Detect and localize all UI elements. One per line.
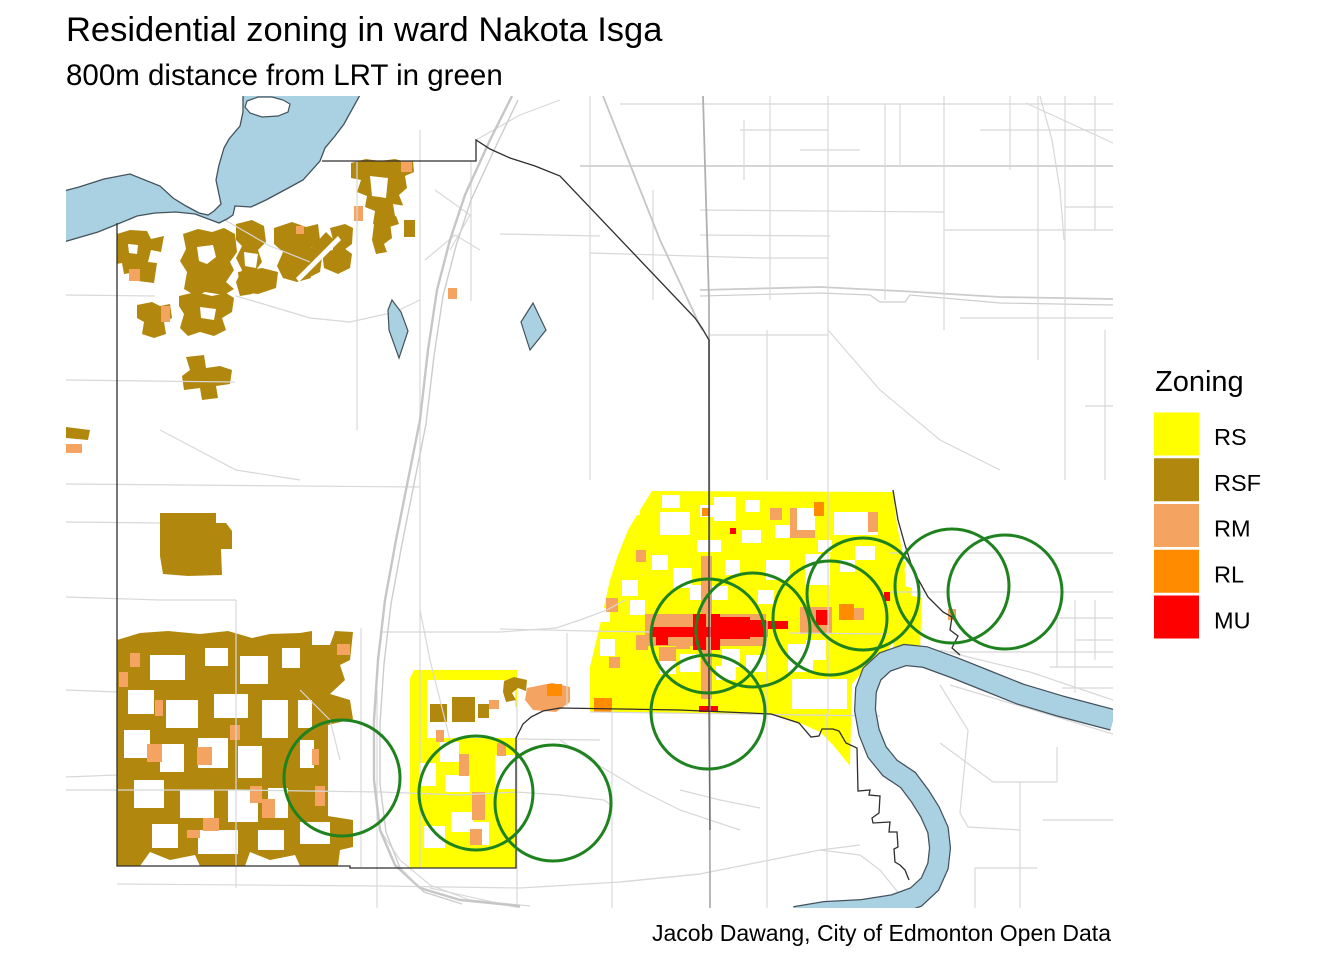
svg-text:Residential zoning in ward Nak: Residential zoning in ward Nakota Isga	[66, 11, 663, 49]
svg-text:Jacob Dawang, City of Edmonton: Jacob Dawang, City of Edmonton Open Data	[652, 920, 1111, 946]
svg-text:RS: RS	[1214, 424, 1247, 450]
svg-text:RM: RM	[1214, 516, 1251, 542]
svg-text:MU: MU	[1214, 608, 1251, 634]
svg-text:Zoning: Zoning	[1155, 366, 1244, 398]
svg-text:RSF: RSF	[1214, 470, 1261, 496]
svg-text:800m distance from LRT in gree: 800m distance from LRT in green	[66, 59, 503, 92]
svg-text:RL: RL	[1214, 562, 1244, 588]
